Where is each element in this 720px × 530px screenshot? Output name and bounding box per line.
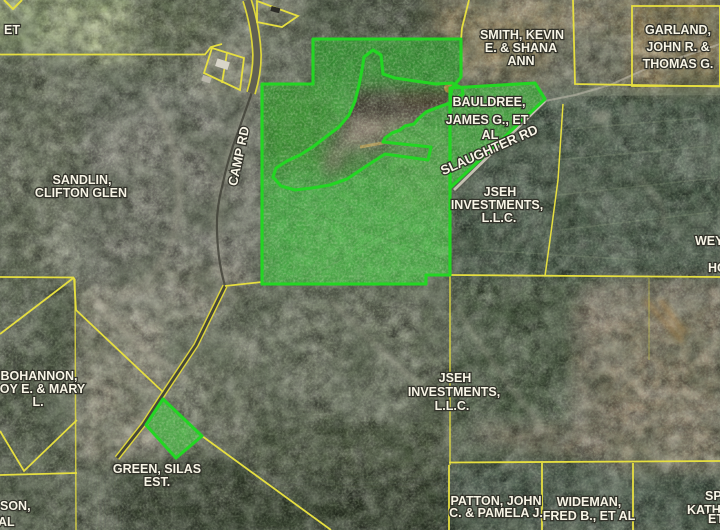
svg-text:JSEH: JSEH (439, 371, 472, 385)
svg-text:ANN: ANN (507, 54, 534, 68)
svg-text:WIDEMAN,: WIDEMAN, (557, 495, 622, 509)
svg-text:GARLAND,: GARLAND, (645, 23, 711, 37)
svg-text:COY E. & MARY: COY E. & MARY (0, 382, 86, 396)
svg-text:SANDLIN,: SANDLIN, (52, 173, 111, 187)
svg-text:ET AL: ET AL (708, 512, 720, 526)
svg-text:INVESTMENTS,: INVESTMENTS, (451, 198, 543, 212)
svg-text:HOLDINGS: HOLDINGS (708, 261, 720, 275)
svg-text:AL: AL (0, 515, 15, 529)
svg-text:L.L.C.: L.L.C. (435, 399, 470, 413)
svg-text:CLIFTON GLEN: CLIFTON GLEN (35, 186, 127, 200)
svg-text:L.: L. (32, 395, 43, 409)
svg-text:WEYERHAEUSER: WEYERHAEUSER (695, 234, 720, 248)
svg-text:GREEN, SILAS: GREEN, SILAS (113, 462, 201, 476)
svg-text:JSEH: JSEH (484, 185, 517, 199)
svg-text:C. & PAMELA J.: C. & PAMELA J. (449, 506, 543, 520)
svg-text:BAULDREE,: BAULDREE, (453, 95, 526, 109)
svg-text:JOHN R. &: JOHN R. & (646, 40, 709, 54)
svg-text:THOMAS G.: THOMAS G. (643, 57, 714, 71)
svg-text:SMITH, KEVIN: SMITH, KEVIN (480, 28, 564, 42)
svg-text:FRED B., ET AL: FRED B., ET AL (543, 509, 636, 523)
svg-text:E. & SHANA: E. & SHANA (485, 41, 557, 55)
svg-text:ET: ET (4, 23, 20, 37)
svg-text:BOHANNON,: BOHANNON, (0, 369, 77, 383)
svg-text:EST.: EST. (144, 475, 170, 489)
svg-text:L.L.C.: L.L.C. (482, 211, 517, 225)
svg-text:SON,: SON, (0, 499, 31, 513)
svg-text:JAMES G., ET: JAMES G., ET (446, 113, 529, 127)
svg-text:INVESTMENTS,: INVESTMENTS, (408, 385, 500, 399)
svg-text:SPARKS,: SPARKS, (705, 489, 720, 503)
